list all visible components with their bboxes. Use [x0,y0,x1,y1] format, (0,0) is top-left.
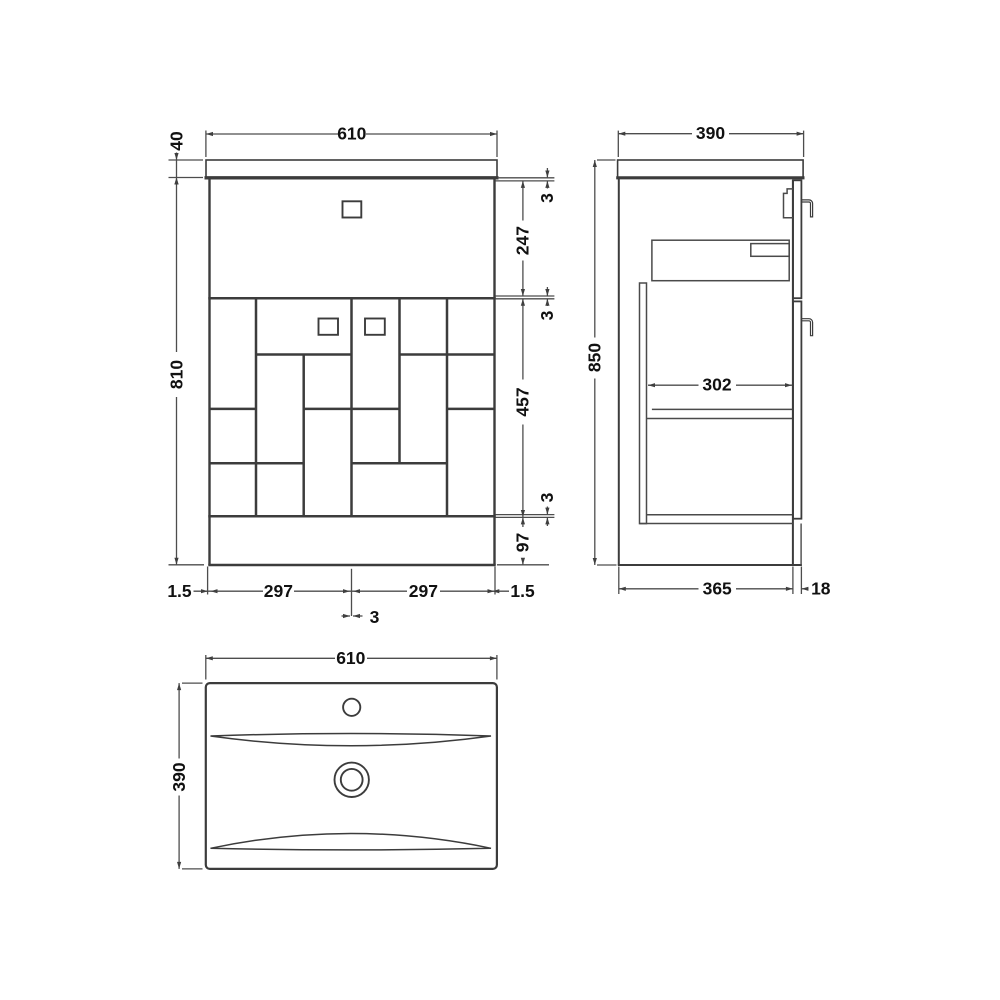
svg-text:3: 3 [370,607,380,627]
svg-text:3: 3 [537,492,557,502]
svg-text:810: 810 [166,360,186,389]
svg-text:1.5: 1.5 [167,581,192,601]
svg-text:3: 3 [537,310,557,320]
svg-text:850: 850 [585,343,605,372]
svg-text:97: 97 [513,533,533,552]
svg-text:390: 390 [696,123,725,143]
svg-text:297: 297 [409,581,438,601]
svg-text:610: 610 [336,648,365,668]
svg-text:247: 247 [513,226,533,255]
svg-text:40: 40 [166,131,186,151]
svg-text:302: 302 [702,375,731,395]
svg-text:18: 18 [811,578,831,598]
svg-text:390: 390 [169,762,189,791]
svg-text:297: 297 [264,581,293,601]
svg-text:457: 457 [513,387,533,416]
svg-text:365: 365 [703,578,732,598]
svg-text:1.5: 1.5 [510,581,535,601]
svg-text:3: 3 [537,193,557,203]
svg-text:610: 610 [337,124,366,144]
